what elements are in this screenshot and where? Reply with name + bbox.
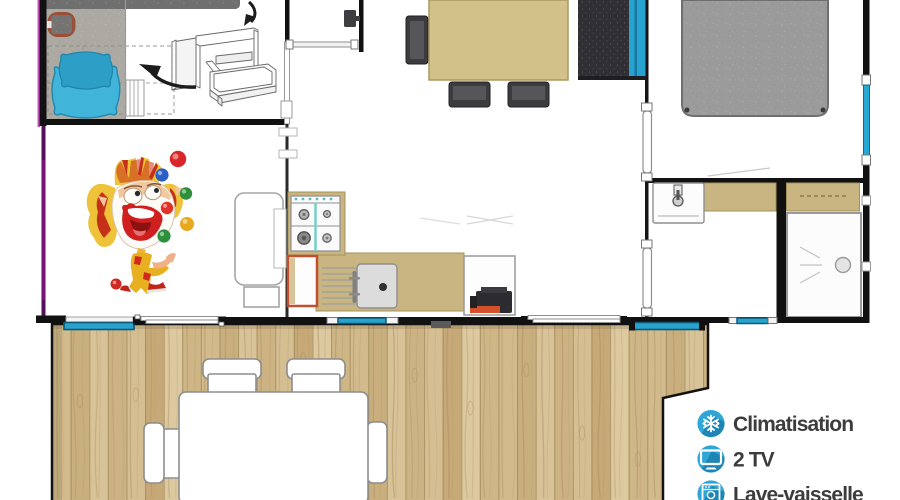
svg-text:2 TV: 2 TV: [733, 449, 775, 472]
svg-text:Lave-vaisselle: Lave-vaisselle: [733, 484, 863, 500]
svg-text:Climatisation: Climatisation: [733, 413, 853, 436]
